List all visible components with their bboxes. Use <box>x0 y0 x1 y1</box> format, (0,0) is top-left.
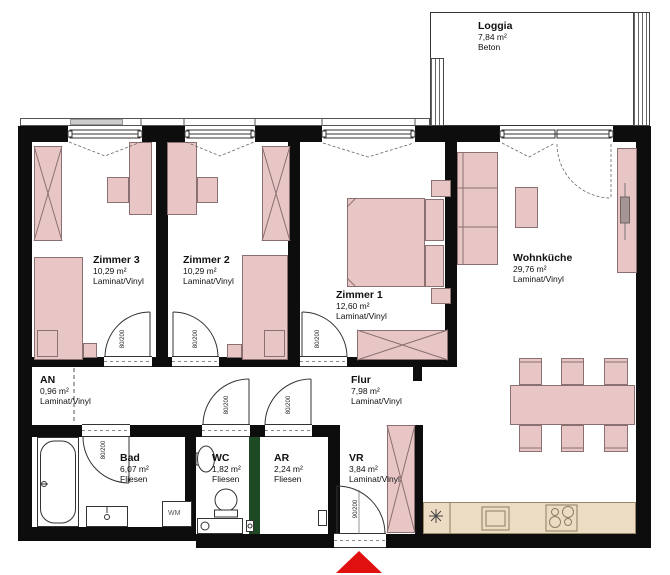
loggia-door-window <box>500 126 613 142</box>
zimmer1-nightstand-bottom <box>431 288 451 304</box>
wall-bath-top-a <box>32 425 82 437</box>
dining-chair <box>519 425 542 452</box>
dining-chair <box>604 358 628 385</box>
zimmer3-nightstand <box>83 343 97 358</box>
wall-right <box>636 126 651 548</box>
room-label-wc: WC 1,82 m² Fliesen <box>212 452 241 484</box>
kitchen-counter <box>423 502 636 534</box>
loggia-outline <box>430 12 650 126</box>
threshold-zimmer1 <box>300 356 347 367</box>
bad-washbasin <box>86 506 128 527</box>
wall-bottom-left <box>18 527 196 541</box>
threshold-entrance <box>334 533 386 548</box>
dining-chair <box>519 358 542 385</box>
zimmer1-bed <box>347 198 425 287</box>
wall-flur-top-b <box>152 357 172 367</box>
zimmer1-pillow-bottom <box>425 245 444 287</box>
wall-left <box>18 126 32 541</box>
dining-chair <box>604 425 628 452</box>
zimmer1-nightstand-top <box>431 180 451 197</box>
zimmer1-wardrobe <box>357 330 448 360</box>
room-label-vr: VR 3,84 m² Laminat/Vinyl <box>349 452 400 484</box>
window-zimmer2 <box>185 126 255 142</box>
room-label-zimmer1: Zimmer 1 12,60 m² Laminat/Vinyl <box>336 289 387 321</box>
loggia-wall-right <box>633 12 650 126</box>
door-size-ar: 80/200 <box>286 388 292 422</box>
door-size-bad: 80/200 <box>101 433 107 467</box>
zimmer3-chair <box>107 177 129 203</box>
coffee-table <box>515 187 538 228</box>
dining-chair <box>561 425 584 452</box>
zimmer1-pillow-top <box>425 199 444 241</box>
wall-bath-top-b <box>130 425 202 437</box>
wall-ar-vr <box>328 437 340 534</box>
wall-stub-kitchen <box>413 367 422 381</box>
canopy-marker <box>70 119 123 125</box>
door-size-zimmer1: 80/200 <box>315 322 321 356</box>
window-zimmer3 <box>68 126 142 142</box>
ar-shaft <box>318 510 327 526</box>
zimmer3-pillow <box>37 330 58 357</box>
bathtub <box>37 437 79 527</box>
washing-machine-label: WM <box>168 510 180 517</box>
zimmer2-chair <box>197 177 218 203</box>
threshold-wc <box>202 424 250 437</box>
room-label-zimmer2: Zimmer 2 10,29 m² Laminat/Vinyl <box>183 254 234 286</box>
door-size-zimmer3: 80/200 <box>120 322 126 356</box>
room-label-loggia: Loggia 7,84 m² Beton <box>478 20 512 52</box>
zimmer2-nightstand <box>227 344 242 358</box>
sofa <box>457 152 498 265</box>
room-label-zimmer3: Zimmer 3 10,29 m² Laminat/Vinyl <box>93 254 144 286</box>
wall-bath-top-d <box>312 425 340 437</box>
threshold-zimmer2 <box>172 356 219 367</box>
room-label-an: AN 0,96 m² Laminat/Vinyl <box>40 374 91 406</box>
door-size-zimmer2: 80/200 <box>193 322 199 356</box>
threshold-ar <box>265 424 312 437</box>
zimmer2-desk <box>167 142 197 215</box>
door-size-entrance: 90/200 <box>353 492 359 526</box>
zimmer2-wardrobe <box>262 146 290 241</box>
door-size-wc: 80/200 <box>224 388 230 422</box>
threshold-zimmer3 <box>104 356 152 367</box>
room-label-flur: Flur 7,98 m² Laminat/Vinyl <box>351 374 402 406</box>
entrance-marker-icon <box>336 551 382 573</box>
zimmer3-wardrobe <box>34 146 62 241</box>
dining-chair <box>561 358 584 385</box>
dining-table <box>510 385 635 425</box>
floor-plan: WM <box>0 0 670 575</box>
loggia-wall-left <box>430 58 444 126</box>
zimmer2-pillow <box>264 330 285 357</box>
sideboard <box>617 148 637 273</box>
wc-shaft <box>197 518 243 534</box>
wall-vr-kitchen <box>415 425 423 534</box>
room-label-ar: AR 2,24 m² Fliesen <box>274 452 303 484</box>
zimmer3-desk <box>129 142 152 215</box>
wall-bottom-right <box>196 534 651 548</box>
room-label-bad: Bad 6,07 m² Fliesen <box>120 452 149 484</box>
window-zimmer1 <box>322 126 415 142</box>
wc-shaft-small <box>246 520 254 532</box>
room-label-wohnkueche: Wohnküche 29,76 m² Laminat/Vinyl <box>513 252 572 284</box>
wall-bath-top-c <box>250 425 265 437</box>
